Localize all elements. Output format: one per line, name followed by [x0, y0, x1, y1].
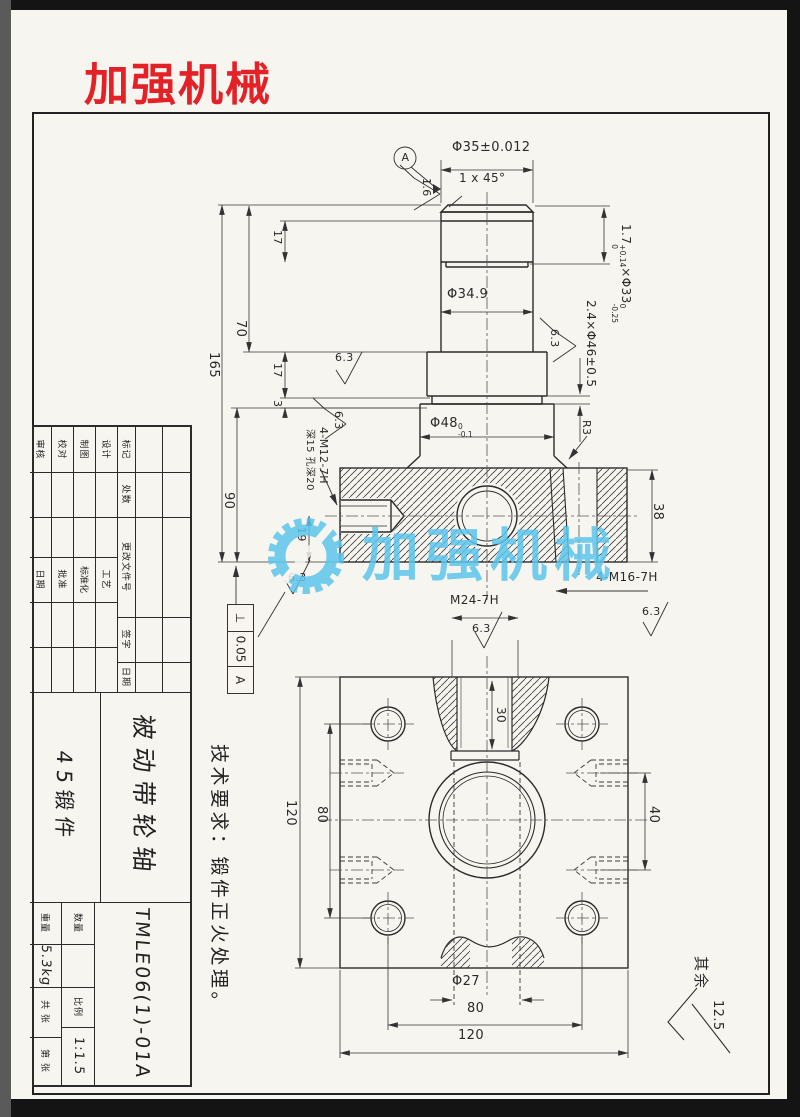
label-m12-depth: 深15 孔深20 [304, 429, 314, 491]
drawing-sheet: 加强机械 [0, 0, 800, 1117]
dim-40: 40 [647, 806, 660, 823]
g33-dia-dn: -0.25 [611, 304, 619, 323]
technical-requirements: 技术要求：锻件正火处理。 [207, 744, 234, 1014]
dim-30: 30 [495, 707, 507, 723]
tolerance-datum-cell: A [228, 667, 253, 693]
dim-38: 38 [651, 503, 664, 520]
dim-phi48: Φ480-0.1 [430, 417, 473, 438]
tb-rev-mark: 标记 [118, 427, 136, 472]
tolerance-datum: A [234, 676, 248, 684]
dim-r3: R3 [581, 420, 592, 435]
tb-role-draft: 制图 [74, 427, 96, 472]
dim-120-left: 120 [284, 800, 297, 826]
g33-val: 1.7 [619, 224, 633, 244]
dim-groove-phi46: 2.4×Φ46±0.5 [585, 300, 597, 387]
dim-phi35: Φ35±0.012 [452, 141, 530, 154]
tb-role-approve: 批准 [52, 557, 74, 602]
roughness-1-6: 1.6 [421, 178, 432, 197]
roughness-6-3-shoulder: 6.3 [335, 352, 354, 363]
title-block: 标记 处数 更改文件号 签字 日期 设计 制图 校对 审核 工艺 标准化 批准 … [32, 425, 192, 1087]
tb-qty-label: 数量 [62, 902, 95, 944]
tb-role-check: 校对 [52, 427, 74, 472]
dim-phi349: Φ34.9 [447, 288, 488, 301]
g33-dia-up: 0 [619, 304, 627, 323]
dim-phi27: Φ27 [452, 975, 480, 988]
tolerance-symbol-cell: ⊥ [228, 605, 253, 632]
roughness-6-3-groove: 6.3 [549, 329, 560, 348]
label-m12: 4-M12-7H [318, 427, 329, 484]
other-surfaces-roughness: 12.5 [711, 1000, 724, 1031]
tb-role-audit: 审核 [30, 427, 52, 472]
dim-19: 19 [296, 527, 307, 542]
tb-rev-sign: 签字 [118, 617, 136, 662]
roughness-6-3-m24: 6.3 [472, 623, 491, 634]
dim-165: 165 [207, 352, 220, 378]
dim-17-mid: 17 [272, 363, 283, 378]
tb-material: 45锻件 [30, 689, 101, 905]
dim-120-bottom: 120 [458, 1029, 484, 1042]
phi48-dn: -0.1 [458, 431, 473, 439]
plate-bottom-lobes [441, 937, 544, 968]
g33-dia: ×Φ33 [619, 267, 633, 303]
label-m24: M24-7H [450, 594, 499, 606]
g33-dia-tol: 0-0.25 [611, 304, 626, 323]
tb-sheet-total: 共 张 [30, 987, 62, 1037]
dim-80-bottom: 80 [467, 1002, 484, 1015]
tb-scale-label: 比例 [62, 987, 95, 1027]
tb-role-design: 设计 [96, 427, 118, 472]
perpendicularity-icon: ⊥ [233, 613, 247, 623]
dim-17-top: 17 [272, 230, 283, 245]
dim-90: 90 [222, 492, 235, 509]
tb-role-date: 日期 [30, 557, 52, 602]
dim-groove-phi33: 1.7+0.140×Φ330-0.25 [611, 224, 632, 323]
plate-m24-pocket [433, 677, 549, 760]
g33-tol: +0.140 [611, 244, 626, 267]
phi48-tol: 0-0.1 [458, 423, 473, 438]
other-surfaces-label: 其余 [693, 956, 708, 990]
tb-part-name: 被动带轮轴 [101, 688, 190, 906]
phi48-val: Φ48 [430, 416, 458, 431]
dim-70: 70 [234, 320, 247, 337]
g33-tol-dn: 0 [611, 244, 619, 267]
tb-role-process: 工艺 [96, 557, 118, 602]
label-m16: 4-M16-7H [596, 571, 658, 583]
tb-rev-date: 日期 [118, 662, 136, 692]
tb-weight-label: 重量 [30, 902, 62, 944]
dim-3: 3 [272, 400, 283, 407]
dim-80-left: 80 [315, 806, 328, 823]
roughness-6-3-m16: 6.3 [642, 606, 661, 617]
flange-section [340, 468, 627, 562]
roughness-6-3-flange: 6.3 [288, 572, 307, 583]
tb-rev-count: 处数 [118, 472, 136, 517]
tb-sheet-no: 第 张 [30, 1037, 62, 1085]
datum-a-label: A [399, 152, 412, 163]
tb-weight-value: 5.3kg [30, 943, 62, 989]
tolerance-value-cell: 0.05 [228, 632, 253, 667]
dim-chamfer: 1 x 45° [459, 172, 505, 184]
title-block-inner: 标记 处数 更改文件号 签字 日期 设计 制图 校对 审核 工艺 标准化 批准 … [32, 425, 192, 1087]
g33-tol-up: +0.14 [619, 244, 627, 267]
witness-lines [218, 160, 658, 1058]
geometric-tolerance-frame: ⊥ 0.05 A [227, 604, 254, 694]
tb-drawing-no: TMLE06(1)-01A [95, 898, 190, 1089]
roughness-6-3-m12: 6.3 [333, 411, 344, 430]
tolerance-value: 0.05 [234, 636, 248, 663]
tb-role-standard: 标准化 [74, 557, 96, 602]
plate-outline [340, 677, 628, 968]
tb-rev-fileno: 更改文件号 [118, 517, 136, 617]
tb-scale-value: 1:1.5 [62, 1026, 95, 1087]
